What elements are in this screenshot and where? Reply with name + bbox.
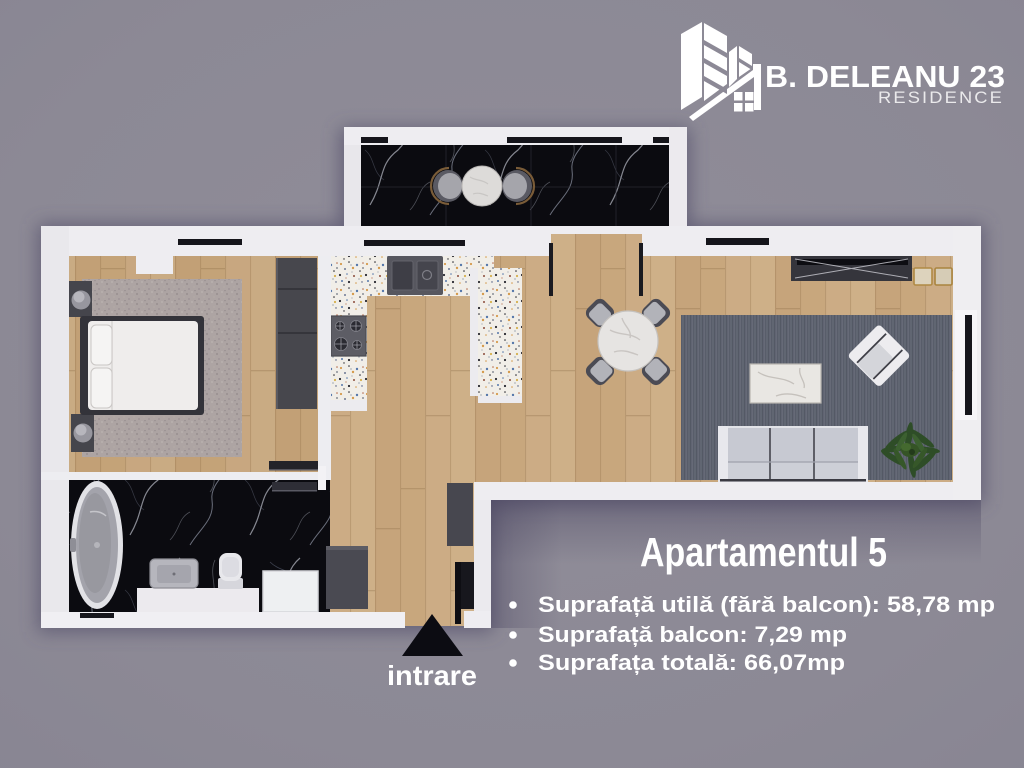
svg-text:Suprafață balcon: 7,29 mp: Suprafață balcon: 7,29 mp [538,622,847,647]
svg-text:Suprafață utilă (fără balcon):: Suprafață utilă (fără balcon): 58,78 mp [538,592,995,617]
svg-text:Apartamentul 5: Apartamentul 5 [640,529,887,575]
svg-text:RESIDENCE: RESIDENCE [878,88,1004,107]
svg-text:Suprafața totală: 66,07mp: Suprafața totală: 66,07mp [538,650,845,675]
svg-text:intrare: intrare [387,660,477,691]
